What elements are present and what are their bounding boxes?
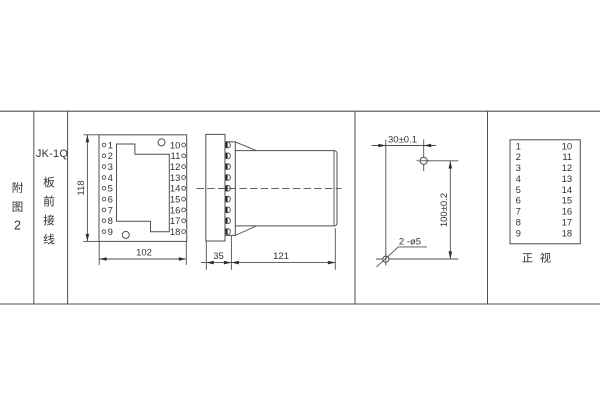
svg-text:18: 18 [562, 228, 573, 239]
svg-text:121: 121 [273, 251, 289, 262]
svg-text:17: 17 [562, 218, 573, 229]
svg-text:1: 1 [108, 140, 113, 151]
svg-text:16: 16 [170, 205, 181, 216]
svg-text:102: 102 [136, 248, 152, 259]
svg-text:8: 8 [108, 216, 113, 227]
svg-text:100±0.2: 100±0.2 [439, 193, 450, 227]
svg-text:4: 4 [516, 174, 521, 185]
svg-text:4: 4 [108, 173, 113, 184]
svg-text:10: 10 [562, 141, 573, 152]
svg-text:2: 2 [516, 152, 521, 163]
svg-text:18: 18 [170, 227, 181, 238]
svg-text:13: 13 [562, 174, 573, 185]
svg-text:14: 14 [170, 184, 181, 195]
svg-text:10: 10 [170, 140, 181, 151]
svg-text:35: 35 [213, 251, 224, 262]
svg-text:2 -ø5: 2 -ø5 [399, 237, 421, 248]
svg-text:7: 7 [516, 207, 521, 218]
svg-text:9: 9 [108, 227, 113, 238]
svg-text:11: 11 [171, 151, 181, 162]
svg-text:15: 15 [562, 196, 573, 207]
svg-text:118: 118 [76, 180, 87, 195]
svg-text:13: 13 [170, 173, 181, 184]
svg-text:12: 12 [562, 163, 573, 174]
svg-text:5: 5 [108, 184, 113, 195]
svg-text:6: 6 [516, 196, 521, 207]
svg-text:5: 5 [516, 185, 521, 196]
svg-text:12: 12 [170, 162, 181, 173]
svg-text:3: 3 [516, 163, 521, 174]
svg-text:6: 6 [108, 195, 113, 206]
svg-text:2: 2 [14, 218, 21, 232]
svg-text:2: 2 [108, 151, 113, 162]
svg-text:1: 1 [516, 141, 521, 152]
svg-text:17: 17 [170, 216, 181, 227]
svg-text:16: 16 [562, 207, 573, 218]
svg-text:3: 3 [108, 162, 113, 173]
svg-text:11: 11 [562, 152, 572, 163]
svg-text:30±0.1: 30±0.1 [388, 134, 417, 145]
svg-text:9: 9 [516, 228, 521, 239]
svg-text:15: 15 [170, 195, 181, 206]
svg-text:JK-1Q: JK-1Q [36, 148, 68, 160]
svg-text:14: 14 [562, 185, 573, 196]
svg-text:7: 7 [108, 205, 113, 216]
svg-text:8: 8 [516, 218, 521, 229]
